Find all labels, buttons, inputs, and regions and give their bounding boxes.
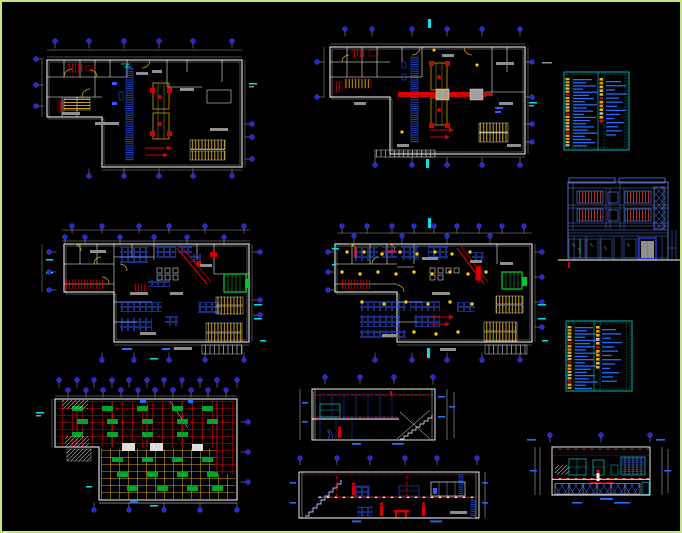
cad-drawing-canvas bbox=[2, 2, 682, 533]
section2-dim-text bbox=[290, 482, 488, 522]
plan3-blue-dims bbox=[122, 348, 170, 350]
cad-sheet[interactable] bbox=[0, 0, 682, 533]
plan1-escalator-unit bbox=[150, 83, 172, 139]
section3-truss-strip bbox=[555, 483, 649, 495]
section1-staircase bbox=[397, 410, 432, 439]
plan3-white-tables bbox=[157, 268, 178, 280]
section3-grid-bubbles bbox=[548, 433, 653, 443]
plan1-wing-stair bbox=[64, 98, 90, 110]
plan2-labels bbox=[354, 54, 552, 147]
section1-person bbox=[338, 426, 341, 438]
plan4-white-tables bbox=[430, 268, 459, 280]
plan4-wc-fixtures bbox=[342, 280, 370, 289]
elevation-windows bbox=[577, 191, 651, 221]
ceiling-plan bbox=[36, 378, 250, 513]
elevation-storefront bbox=[568, 230, 676, 260]
section-1 bbox=[300, 375, 455, 445]
section2-floor-slab bbox=[317, 497, 476, 500]
plan1-blue-bits bbox=[112, 82, 123, 105]
section2-grid-bubbles bbox=[298, 456, 480, 466]
plan4-escalator bbox=[457, 246, 488, 284]
section2-red-table bbox=[394, 510, 409, 518]
floor-plan-1 bbox=[34, 39, 257, 179]
section3-roof-dash bbox=[553, 449, 649, 450]
plan4-green-machine bbox=[502, 272, 527, 289]
plan2-escalator-strip bbox=[411, 57, 418, 142]
section1-grid-bubbles bbox=[323, 375, 436, 385]
plan3-exterior-stair bbox=[202, 345, 242, 354]
section1-cyan-box bbox=[320, 404, 340, 417]
legend-table-1-rows bbox=[566, 78, 628, 146]
plan2-arrows bbox=[430, 128, 454, 140]
plan4-stairs bbox=[484, 296, 523, 341]
plan1-cyan-mark bbox=[121, 64, 131, 67]
floor-plan-2 bbox=[315, 19, 552, 168]
elevation-entrance-door bbox=[639, 238, 656, 259]
floor-plan-4 bbox=[326, 218, 548, 362]
section1-blue-figure bbox=[328, 430, 333, 439]
plan3-green-machine bbox=[224, 274, 250, 292]
section2-upper-furniture bbox=[354, 482, 465, 496]
plan2-wing-stair bbox=[345, 79, 371, 88]
section-3 bbox=[527, 433, 671, 504]
plan1-stairs bbox=[190, 140, 225, 160]
plan1-dim-cyan bbox=[249, 83, 257, 85]
legend-table-1 bbox=[564, 72, 629, 150]
plan1-escalator-strip bbox=[126, 68, 133, 160]
floor-plan-3 bbox=[42, 224, 266, 363]
legend-table-2-rows bbox=[568, 326, 623, 389]
plan4-exterior-stair bbox=[485, 345, 527, 354]
legend-table-2 bbox=[566, 321, 632, 391]
plan3-labels bbox=[90, 250, 212, 350]
building-elevation bbox=[558, 178, 682, 268]
section-2 bbox=[290, 456, 488, 523]
plan3-wc-fixtures bbox=[65, 280, 103, 289]
elevation-hatched-column bbox=[654, 187, 665, 229]
plan1-arrows bbox=[145, 146, 172, 158]
section2-ceiling-dash bbox=[301, 473, 477, 474]
